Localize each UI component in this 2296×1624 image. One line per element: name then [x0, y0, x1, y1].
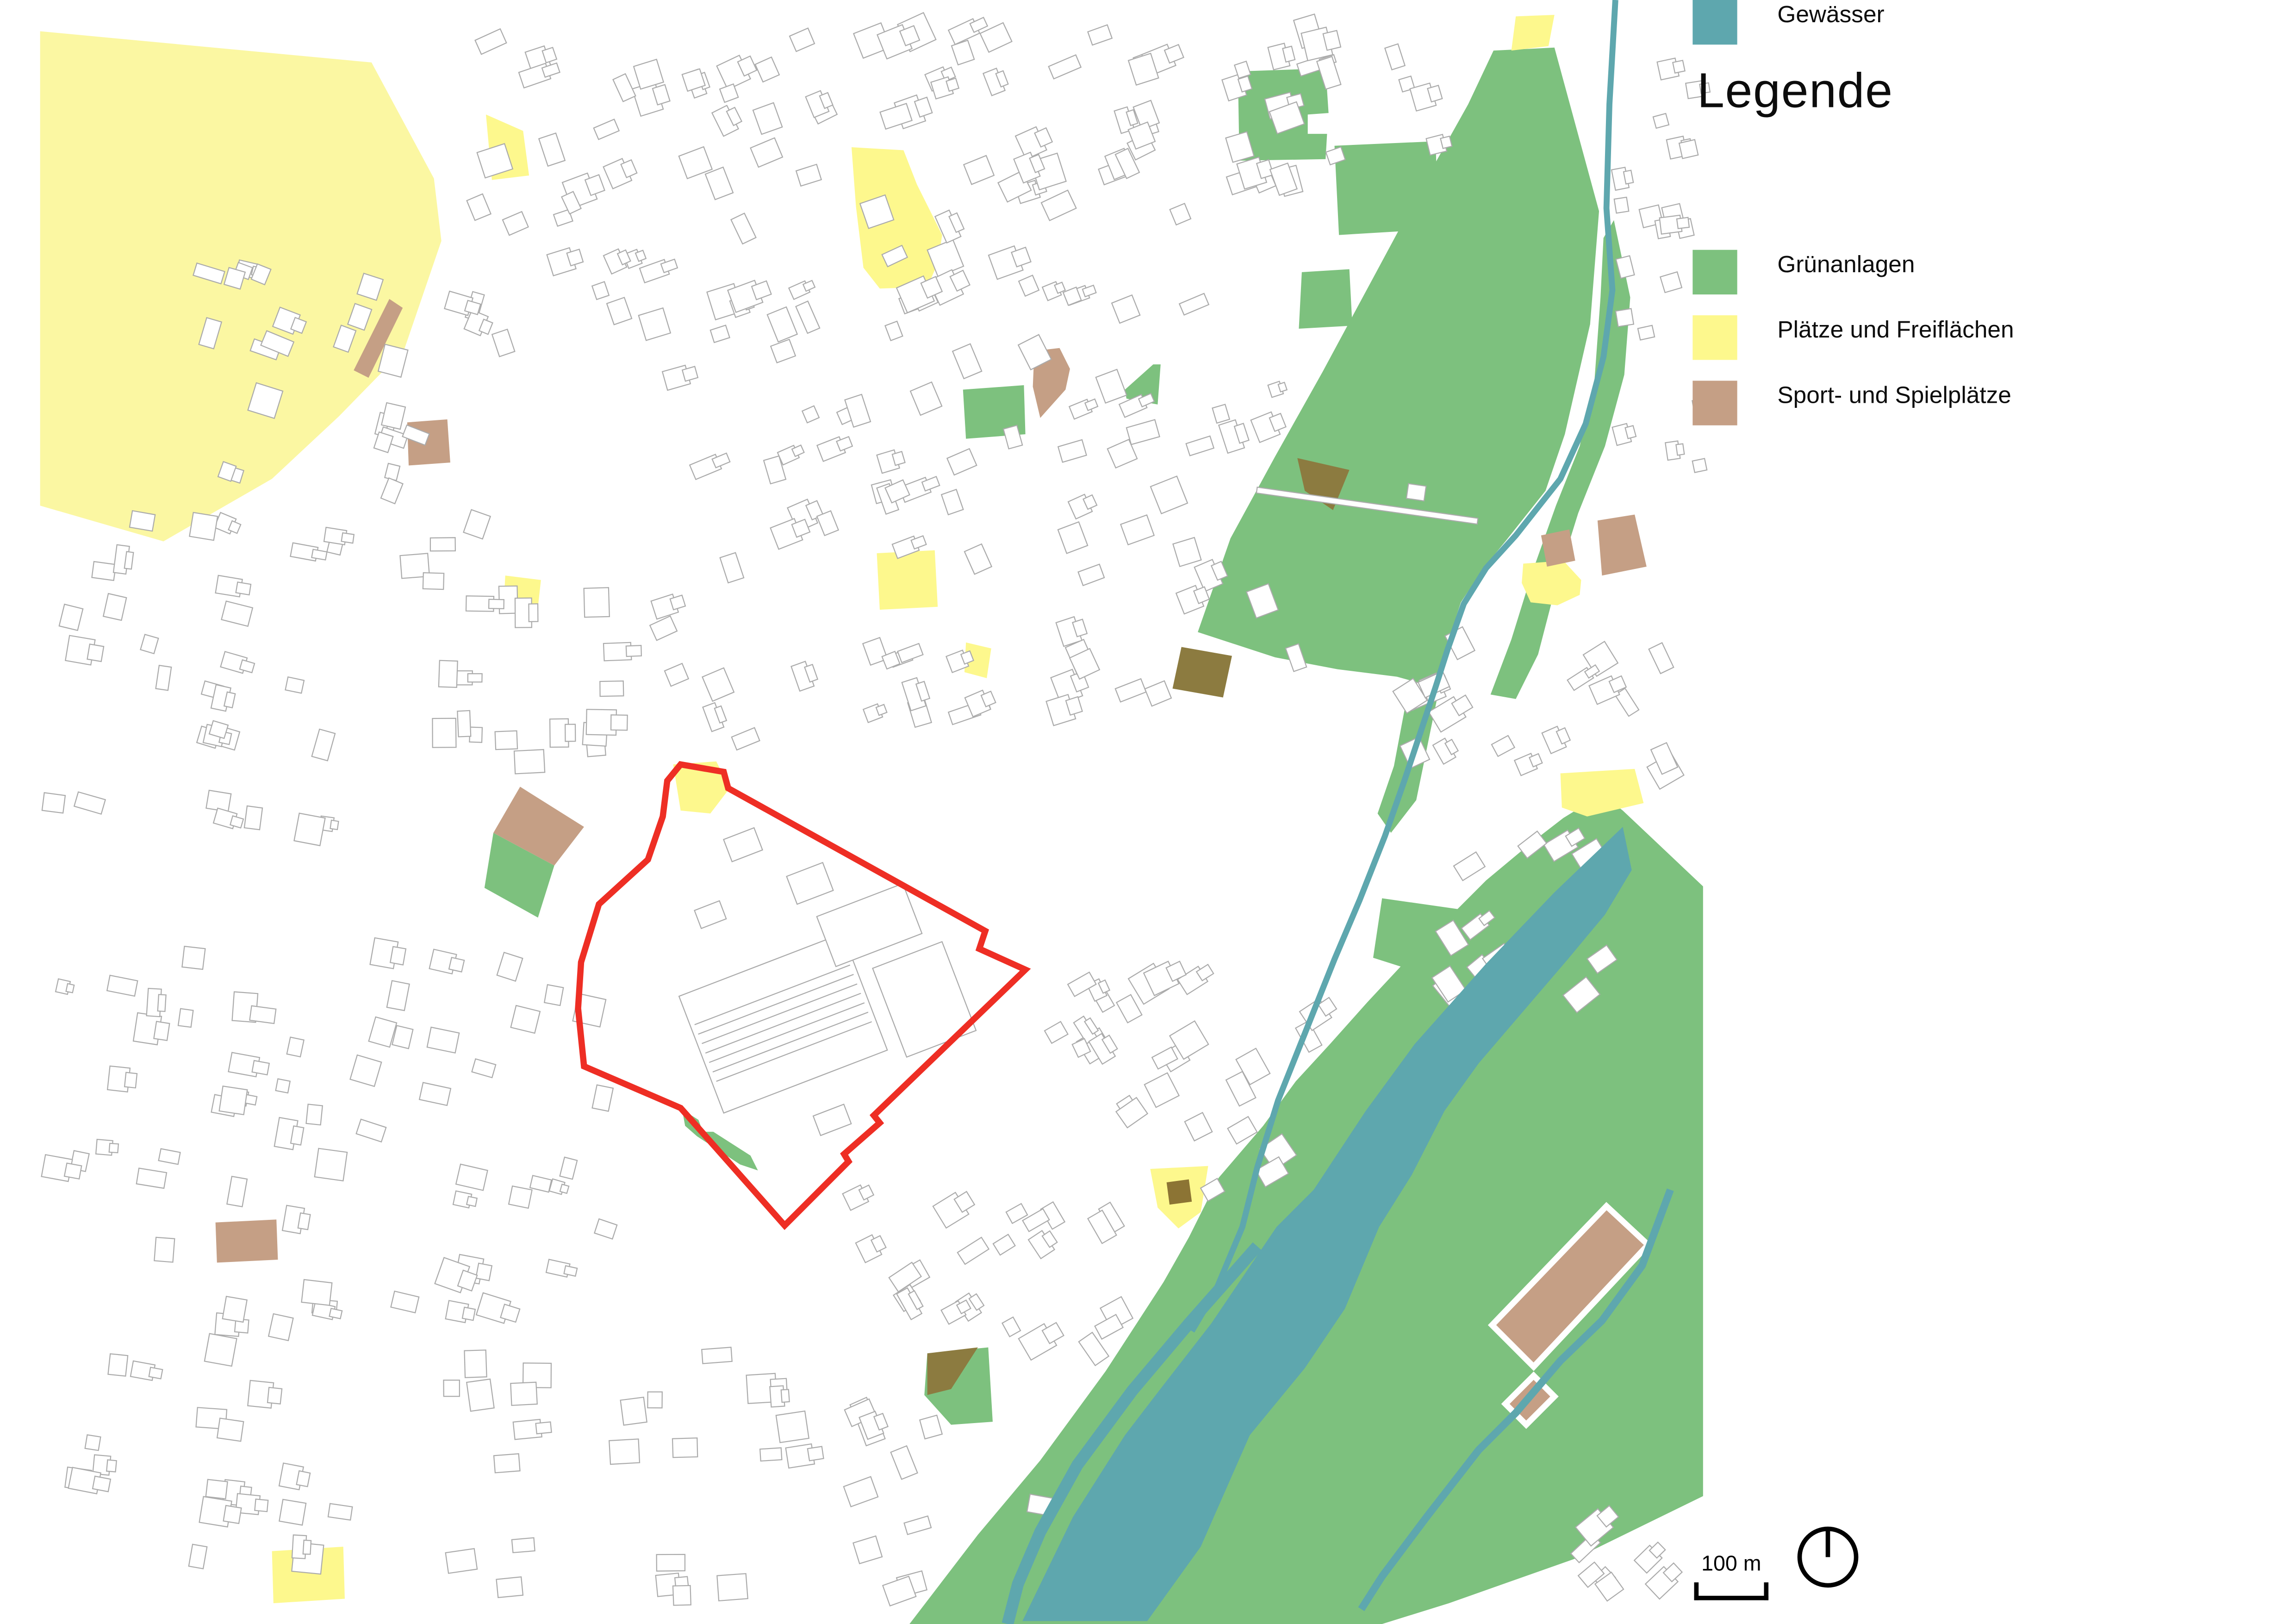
building-footprint	[297, 1471, 311, 1487]
building-footprint	[217, 1418, 243, 1441]
building-footprint	[560, 1184, 569, 1193]
building-footprint	[85, 1435, 101, 1450]
building-footprint	[205, 1334, 237, 1366]
patch-spielplatz-small	[1167, 1180, 1192, 1205]
building-footprint	[1616, 309, 1634, 327]
building-footprint	[255, 1499, 268, 1512]
building-footprint	[512, 1538, 535, 1553]
legend-item-plaetze: Plätze und Freiflächen	[1692, 315, 2014, 360]
building-footprint	[430, 537, 455, 551]
building-footprint	[252, 1061, 269, 1075]
building-footprint	[311, 550, 327, 560]
gruenanlagen-swatch	[1692, 250, 1737, 294]
building-footprint	[1677, 218, 1689, 229]
plan-canvas: Legende Grünanlagen Plätze und Freifläch…	[0, 0, 2296, 1624]
building-footprint	[124, 552, 134, 569]
patch-platz-freiflaeche	[1512, 15, 1555, 50]
legend-item-label: Plätze und Freiflächen	[1777, 315, 2014, 346]
building-footprint	[330, 820, 338, 830]
patch-sport-spielplatz	[216, 1219, 278, 1262]
building-footprint	[760, 1448, 782, 1461]
building-footprint	[268, 1314, 293, 1341]
building-footprint	[449, 957, 464, 972]
plan-sheet: Legende Grünanlagen Plätze und Freifläch…	[0, 0, 2296, 1624]
building-footprint	[93, 1476, 111, 1492]
legend-title: Legende	[1697, 62, 1893, 119]
building-footprint	[178, 1009, 193, 1027]
building-footprint	[291, 1126, 304, 1145]
building-footprint	[287, 1037, 304, 1056]
building-footprint	[342, 533, 354, 543]
building-footprint	[672, 1438, 697, 1457]
sportplaetze-swatch	[1692, 381, 1737, 425]
building-footprint	[536, 1422, 552, 1434]
building-footprint	[268, 1387, 282, 1404]
building-footprint	[189, 1544, 207, 1569]
building-footprint	[106, 1460, 117, 1472]
building-footprint	[544, 985, 563, 1006]
building-footprint	[390, 947, 406, 965]
building-footprint	[279, 1499, 306, 1525]
gewaesser-swatch	[1692, 0, 1737, 44]
building-footprint	[306, 1104, 322, 1125]
building-footprint	[609, 1439, 640, 1464]
building-footprint	[1624, 170, 1633, 184]
building-footprint	[124, 1073, 137, 1088]
building-footprint	[189, 512, 218, 540]
building-footprint	[130, 511, 155, 531]
building-footprint	[510, 1382, 537, 1405]
patch-gruenanlage	[1334, 141, 1438, 235]
building-footprint	[808, 1446, 824, 1461]
building-footprint	[154, 1021, 169, 1040]
building-footprint	[244, 806, 262, 830]
legend-item-sportplaetze: Sport- und Spielplätze	[1692, 381, 2011, 425]
building-footprint	[149, 1368, 163, 1379]
building-footprint	[467, 1379, 494, 1411]
building-footprint	[328, 1504, 352, 1520]
building-footprint	[223, 1296, 247, 1322]
building-footprint	[489, 600, 504, 609]
building-footprint	[109, 1143, 118, 1153]
building-footprint	[495, 731, 517, 750]
building-footprint	[64, 1163, 81, 1179]
patch-platz-freiflaeche	[877, 550, 938, 610]
legend-item-label: Grünanlagen	[1777, 250, 1915, 281]
building-footprint	[182, 946, 205, 969]
building-footprint	[565, 724, 575, 741]
building-footprint	[236, 582, 251, 595]
building-footprint	[224, 1505, 242, 1524]
plaetze-swatch	[1692, 315, 1737, 360]
building-footprint	[657, 1555, 685, 1571]
building-footprint	[286, 677, 304, 693]
building-footprint	[1440, 136, 1452, 148]
patch-sport-spielplatz-dark	[1172, 647, 1232, 697]
building-footprint	[330, 1308, 342, 1318]
building-footprint	[432, 718, 456, 748]
building-footprint	[600, 681, 623, 696]
building-footprint	[249, 1006, 276, 1024]
building-footprint	[1679, 140, 1698, 159]
building-footprint	[494, 1454, 520, 1473]
building-footprint	[584, 587, 610, 617]
scale-bar: 100 m	[1694, 1553, 1769, 1600]
map-canvas	[0, 0, 2296, 1624]
building-footprint	[1406, 484, 1426, 501]
building-footprint	[514, 750, 545, 774]
building-footprint	[302, 1280, 332, 1305]
building-footprint	[781, 1389, 790, 1402]
building-footprint	[464, 1350, 486, 1377]
building-footprint	[673, 1586, 691, 1605]
scale-bar-bracket	[1694, 1582, 1769, 1600]
patch-gruenanlage	[1299, 269, 1352, 329]
north-indicator-icon	[1797, 1526, 1859, 1588]
building-footprint	[443, 1380, 459, 1396]
building-footprint	[496, 1577, 523, 1598]
building-footprint	[621, 1397, 647, 1425]
building-footprint	[776, 1411, 809, 1443]
building-footprint	[467, 1196, 477, 1206]
building-footprint	[1614, 197, 1629, 213]
legend-item-gruenanlagen: Grünanlagen	[1692, 250, 1915, 294]
building-footprint	[468, 674, 482, 682]
building-footprint	[42, 793, 65, 813]
building-footprint	[626, 645, 641, 656]
building-footprint	[647, 1392, 662, 1408]
building-footprint	[529, 604, 538, 622]
building-footprint	[303, 1540, 311, 1555]
building-footprint	[294, 813, 325, 846]
patch-sport-spielplatz	[407, 419, 450, 466]
building-footprint	[298, 1213, 311, 1230]
patch-sport-spielplatz	[1541, 530, 1575, 567]
building-footprint	[66, 984, 75, 993]
building-footprint	[158, 994, 166, 1012]
building-footprint	[446, 1549, 477, 1573]
building-footprint	[457, 711, 471, 737]
scale-bar-label: 100 m	[1694, 1553, 1769, 1576]
building-footprint	[423, 573, 444, 589]
legend-item-gewaesser: Gewässer	[1692, 0, 1884, 44]
building-footprint	[87, 644, 104, 662]
building-footprint	[276, 1079, 290, 1093]
building-footprint	[315, 1149, 347, 1181]
building-footprint	[154, 1237, 174, 1262]
building-footprint	[439, 661, 458, 687]
building-footprint	[462, 1307, 475, 1320]
building-footprint	[476, 1263, 492, 1281]
building-footprint	[156, 665, 172, 690]
building-footprint	[469, 727, 482, 743]
building-footprint	[611, 715, 628, 730]
building-footprint	[108, 1354, 128, 1376]
building-footprint	[509, 1186, 532, 1208]
building-footprint	[702, 1347, 732, 1363]
building-footprint	[92, 562, 116, 581]
building-footprint	[1676, 444, 1684, 456]
building-footprint	[1692, 458, 1707, 472]
building-footprint	[219, 1086, 248, 1115]
building-footprint	[1638, 325, 1655, 340]
legend-item-label: Sport- und Spielplätze	[1777, 381, 2011, 412]
building-footprint	[1673, 60, 1685, 73]
legend-item-label: Gewässer	[1777, 0, 1884, 31]
building-footprint	[717, 1574, 747, 1601]
building-footprint	[206, 1480, 228, 1499]
